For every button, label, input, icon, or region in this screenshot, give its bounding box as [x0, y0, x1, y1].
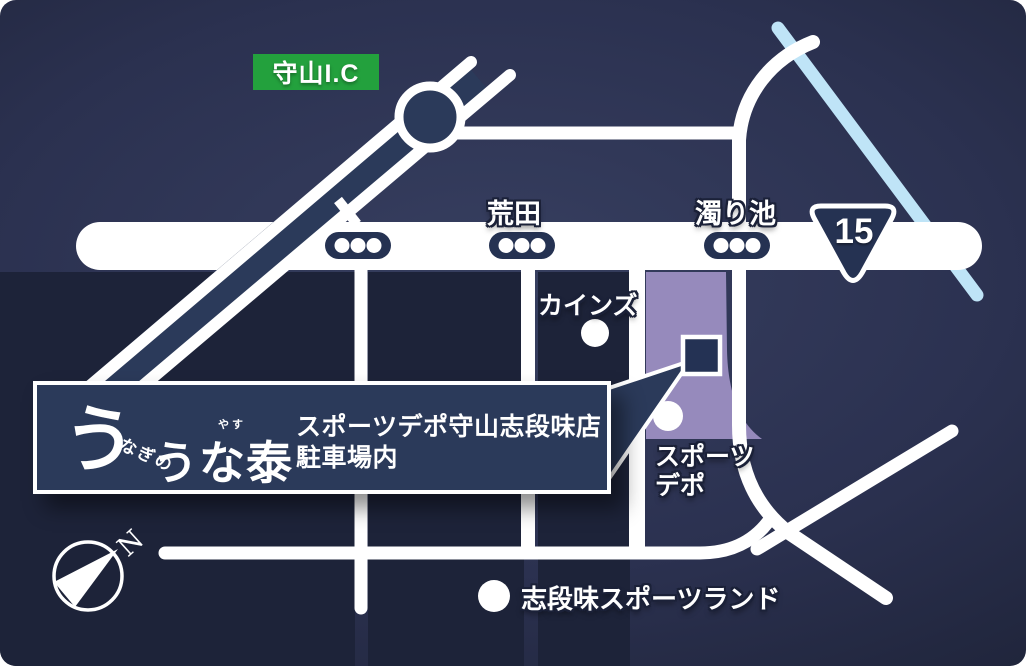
traffic-signal-icon	[489, 232, 555, 259]
location-line2: 駐車場内	[296, 438, 398, 474]
sports-depo-line1: スポーツ	[655, 443, 755, 471]
interchange-ring-icon	[399, 86, 461, 148]
cainz-dot	[581, 319, 609, 347]
landmark-label-sports-depo: スポーツデポ	[655, 443, 755, 501]
map-graphics	[0, 0, 1026, 666]
traffic-signal-icon	[704, 232, 770, 259]
moriyama-ic-badge: 守山I.C	[253, 54, 379, 90]
access-map: 守山I.C 15 荒田 濁り池 カインズ スポーツデポ 志段味スポーツランド う…	[0, 0, 1026, 666]
northeast-diagonal-road	[757, 431, 952, 549]
destination-marker	[683, 337, 720, 374]
route-15-number: 15	[812, 212, 896, 252]
signal-label-arata: 荒田	[487, 192, 541, 231]
sports-depo-line2: デポ	[655, 472, 705, 500]
traffic-signal-icon	[325, 232, 391, 259]
landmark-label-cainz: カインズ	[538, 286, 638, 322]
restaurant-info-box: う なぎの やす うな泰 スポーツデポ守山志段味店 駐車場内	[33, 381, 611, 494]
sportsland-dot	[478, 580, 510, 612]
moriyama-ic-label: 守山I.C	[273, 54, 360, 90]
landmark-label-sportsland: 志段味スポーツランド	[521, 579, 780, 616]
signal-label-nigoriike: 濁り池	[695, 192, 776, 231]
restaurant-logo-name: うな泰	[152, 427, 293, 493]
